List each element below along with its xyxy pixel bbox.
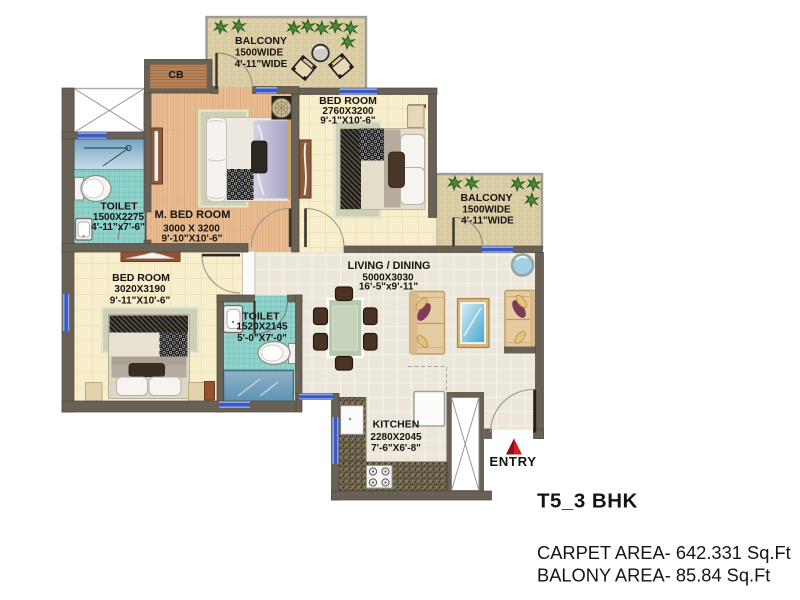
- svg-text:4'-11"WIDE: 4'-11"WIDE: [235, 59, 288, 70]
- svg-text:LIVING / DINING: LIVING / DINING: [348, 260, 431, 272]
- svg-text:1520X2145: 1520X2145: [236, 322, 288, 333]
- svg-text:TOILET: TOILET: [100, 201, 138, 213]
- svg-text:ENTRY: ENTRY: [489, 454, 536, 469]
- svg-text:9'-11"X10'-6": 9'-11"X10'-6": [110, 296, 171, 307]
- svg-text:CB: CB: [168, 69, 184, 81]
- svg-text:CARPET AREA- 642.331 Sq.Ft: CARPET AREA- 642.331 Sq.Ft: [537, 542, 791, 563]
- svg-text:BALCONY: BALCONY: [461, 192, 513, 204]
- svg-text:BALONY AREA- 85.84 Sq.Ft: BALONY AREA- 85.84 Sq.Ft: [537, 565, 770, 586]
- svg-text:BALCONY: BALCONY: [235, 35, 287, 47]
- svg-text:BED ROOM: BED ROOM: [112, 272, 170, 284]
- svg-text:1500WIDE: 1500WIDE: [235, 48, 284, 59]
- svg-text:3020X3190: 3020X3190: [114, 284, 166, 295]
- svg-text:9'-1"X10'-6": 9'-1"X10'-6": [320, 116, 376, 127]
- svg-text:9'-10"X10'-6": 9'-10"X10'-6": [162, 234, 223, 245]
- svg-text:KITCHEN: KITCHEN: [373, 419, 420, 431]
- svg-text:M. BED ROOM: M. BED ROOM: [155, 209, 231, 221]
- svg-text:4'-11"WIDE: 4'-11"WIDE: [461, 216, 514, 227]
- svg-text:16'-5"x9'-11": 16'-5"x9'-11": [359, 282, 419, 293]
- svg-text:2280X2045: 2280X2045: [370, 432, 422, 443]
- svg-text:4'-11"x7'-6": 4'-11"x7'-6": [91, 222, 145, 233]
- svg-text:5'-0"X7'-0": 5'-0"X7'-0": [237, 333, 287, 344]
- svg-text:T5_3 BHK: T5_3 BHK: [537, 490, 638, 513]
- svg-text:1500WIDE: 1500WIDE: [462, 205, 511, 216]
- svg-text:7'-6"X6'-8": 7'-6"X6'-8": [371, 443, 421, 454]
